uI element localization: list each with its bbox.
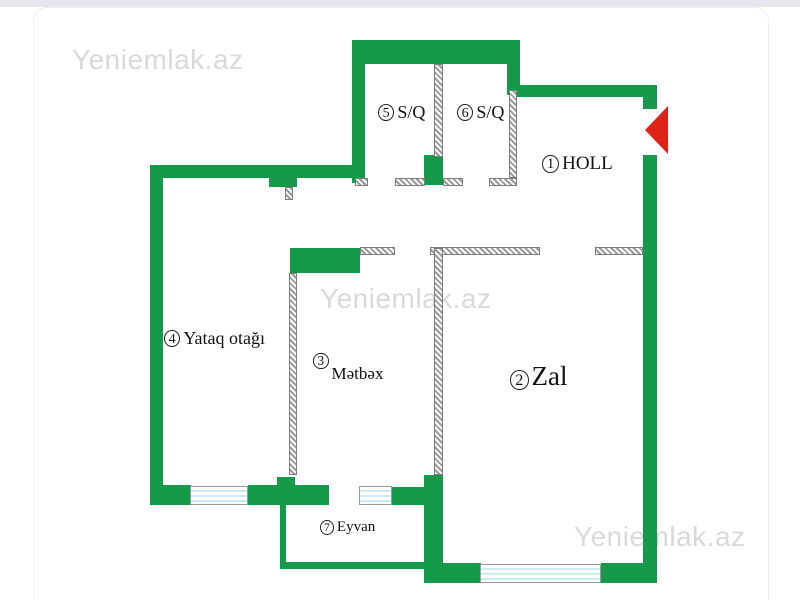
partition-sq-divider xyxy=(434,64,443,157)
partition-sq6-bottom-left xyxy=(443,178,463,186)
entrance-arrow-icon xyxy=(645,106,668,154)
room-label-sq6: 6 S/Q xyxy=(457,102,504,123)
partition-bedroom-door-jamb xyxy=(285,187,293,200)
partition-sq5-bottom-left xyxy=(355,178,368,186)
partition-zal-top-left xyxy=(430,247,540,255)
partition-sq6-right xyxy=(509,90,517,178)
window-kitchen xyxy=(359,486,392,505)
partition-kitchen-zal xyxy=(434,248,443,475)
room-number-2: 2 xyxy=(510,370,529,390)
wall-eyvan-bottom xyxy=(280,562,430,569)
room-label-holl: 1 HOLL xyxy=(542,153,613,175)
wall-bedroom-bottom-left xyxy=(150,485,191,505)
room-label-yataq-otagi: 4 Yataq otağı xyxy=(164,328,265,349)
wall-kitchen-bottom-bump xyxy=(277,477,295,486)
partition-kitchen-top xyxy=(360,247,395,255)
wall-sq-divider-block xyxy=(424,155,443,185)
room-number-6: 6 xyxy=(457,104,473,122)
wall-zal-bottom-left xyxy=(443,563,481,583)
watermark-top-left: Yeniemlak.az xyxy=(72,44,244,76)
wall-right-main xyxy=(643,155,657,583)
partition-zal-top-right xyxy=(595,247,643,255)
window-bedroom xyxy=(190,486,248,505)
wall-bedroom-left xyxy=(150,165,163,505)
watermark-bottom-right: Yeniemlak.az xyxy=(574,521,746,553)
room-name-yataq-otagi: Yataq otağı xyxy=(183,328,265,349)
partition-sq5-bottom-right xyxy=(395,178,425,186)
wall-kitchen-bottom-right xyxy=(391,487,424,505)
room-name-sq6: S/Q xyxy=(476,102,504,123)
room-name-metbex: Mətbəx xyxy=(332,364,384,384)
watermark-center: Yeniemlak.az xyxy=(320,283,492,315)
room-label-eyvan: 7 Eyvan xyxy=(320,519,375,536)
partition-bedroom-kitchen xyxy=(289,273,297,475)
room-number-3: 3 xyxy=(313,353,329,370)
partition-sq6-bottom-right xyxy=(489,178,517,186)
wall-kitchen-vent-block xyxy=(290,248,360,273)
wall-bedroom-top-bump xyxy=(269,178,297,187)
room-number-7: 7 xyxy=(320,520,334,535)
wall-top-bar xyxy=(352,40,520,64)
room-number-1: 1 xyxy=(542,155,559,174)
room-name-sq5: S/Q xyxy=(397,102,425,123)
room-name-holl: HOLL xyxy=(562,153,613,175)
window-zal xyxy=(480,564,601,583)
room-name-zal: Zal xyxy=(532,361,568,392)
page-top-strip xyxy=(0,0,800,7)
room-name-eyvan: Eyvan xyxy=(337,519,375,536)
wall-bedroom-top xyxy=(150,165,364,178)
room-number-5: 5 xyxy=(378,104,394,122)
room-number-4: 4 xyxy=(164,330,180,348)
room-label-metbex: 3 Mətbəx xyxy=(313,351,383,384)
wall-bedroom-bottom-mid xyxy=(248,485,329,505)
wall-holl-top xyxy=(517,85,657,97)
floorplan-image: Yeniemlak.az Yeniemlak.az Yeniemlak.az 1… xyxy=(0,0,800,600)
wall-zal-bottom-right xyxy=(601,563,657,583)
room-label-sq5: 5 S/Q xyxy=(378,102,425,123)
room-label-zal: 2 Zal xyxy=(510,361,568,392)
wall-eyvan-left xyxy=(280,505,286,569)
wall-sq-left xyxy=(352,40,365,183)
